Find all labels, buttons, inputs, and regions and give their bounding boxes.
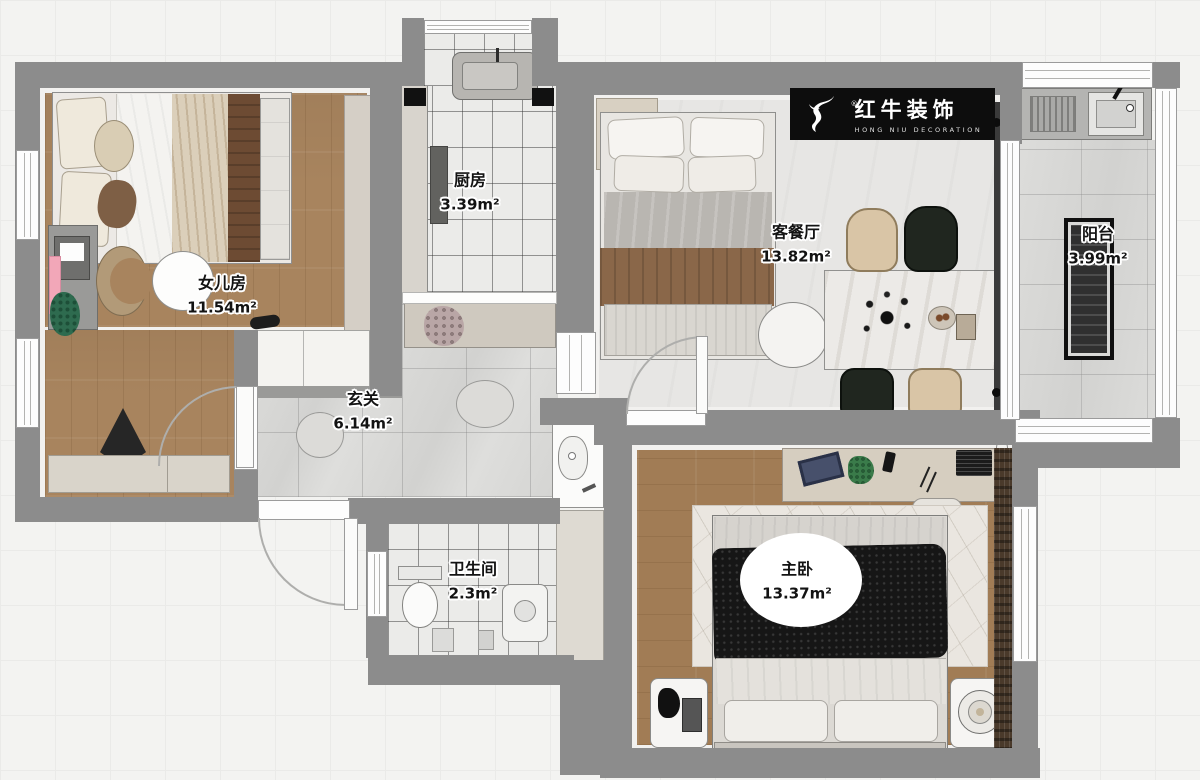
wall — [600, 748, 1040, 778]
daughter-bed-side-rail — [260, 98, 290, 260]
master-pillow — [834, 700, 938, 742]
wall — [1000, 62, 1022, 144]
dining-plate — [928, 306, 956, 330]
window — [16, 150, 39, 240]
room-name: 客餐厅 — [761, 225, 831, 242]
brand-logo-banner: ® 红牛装饰 HONG NIU DECORATION — [790, 88, 995, 140]
room-area: 13.82m² — [761, 250, 831, 266]
master-curtain — [994, 448, 1012, 750]
window-balcony-right — [1155, 88, 1177, 418]
master-desk-laptop — [956, 450, 992, 476]
balcony-vent-grille — [1030, 96, 1076, 132]
window — [16, 338, 39, 428]
wall — [370, 62, 402, 396]
living-bed-pillow — [687, 155, 756, 193]
dining-chair — [904, 206, 958, 272]
master-pillow — [724, 700, 828, 742]
wall — [1012, 443, 1180, 468]
room-label-hall: 玄关 6.14m² — [333, 392, 392, 433]
kitchen-threshold — [402, 292, 557, 304]
hall-rug — [456, 380, 514, 428]
wall — [556, 62, 594, 334]
room-label-bathroom: 卫生间 2.3m² — [449, 562, 498, 603]
dining-tray — [956, 314, 976, 340]
wall — [15, 62, 40, 522]
wall — [234, 468, 258, 522]
room-label-daughter: 女儿房 11.54m² — [187, 276, 257, 317]
room-area: 13.37m² — [762, 587, 832, 603]
window-balcony-top — [1022, 62, 1153, 88]
room-area: 3.99m² — [1068, 252, 1127, 268]
wall — [368, 655, 574, 685]
room-area: 6.14m² — [333, 417, 392, 433]
living-bed-runner — [600, 248, 774, 306]
nightstand-tray — [682, 698, 702, 732]
daughter-round-cushion — [94, 120, 134, 172]
room-label-balcony: 阳台 3.99m² — [1068, 227, 1127, 268]
room-name: 卫生间 — [449, 562, 498, 579]
window-balcony-bottom — [1015, 418, 1153, 443]
wall — [532, 18, 558, 86]
bathroom-fixture — [478, 630, 494, 650]
room-label-master: 主卧 13.37m² — [762, 562, 832, 603]
daughter-bench — [240, 330, 370, 388]
room-label-living: 客餐厅 13.82m² — [761, 225, 831, 266]
daughter-wardrobe — [344, 95, 372, 335]
brand-text: 红牛装饰 HONG NIU DECORATION — [855, 94, 983, 134]
brand-name-cn: 红牛装饰 — [855, 94, 983, 124]
entry-door-swing — [258, 518, 346, 606]
wall — [560, 660, 604, 775]
daughter-plant — [50, 292, 80, 336]
washing-machine-door — [514, 600, 536, 622]
window-bathroom — [367, 551, 387, 617]
kitchen-faucet — [496, 48, 499, 62]
master-bed-duvet-fold — [716, 658, 946, 704]
wall — [234, 330, 258, 388]
kitchen-counter — [402, 86, 428, 292]
corridor-washbasin-drain — [568, 452, 576, 460]
bathroom-side-cabinet — [556, 510, 604, 662]
room-label-kitchen: 厨房 3.39m² — [440, 173, 499, 214]
kitchen-stove-block — [404, 88, 426, 106]
entry-door-opening — [258, 500, 350, 520]
window-master-right — [1013, 506, 1037, 662]
hall-wreath-decor — [424, 306, 464, 346]
nightstand-speaker-dot — [976, 708, 984, 716]
floor-plan: ® 红牛装饰 HONG NIU DECORATION 女儿房 11.54m² 厨… — [0, 0, 1200, 780]
dining-table — [824, 270, 1008, 370]
living-bed-pillow — [613, 155, 684, 193]
brand-name-en: HONG NIU DECORATION — [855, 126, 983, 134]
wall — [604, 420, 632, 750]
wall — [1153, 418, 1180, 443]
window — [424, 20, 532, 34]
toilet-tank — [398, 566, 442, 580]
wall — [15, 497, 258, 522]
bathroom-fixture — [432, 628, 454, 652]
living-bed-pillow — [607, 116, 685, 160]
dining-chair — [846, 208, 898, 272]
living-bed-pillow — [689, 117, 764, 160]
hall-living-threshold — [556, 332, 596, 394]
toilet-bowl — [402, 582, 438, 628]
room-name: 阳台 — [1068, 227, 1127, 244]
dining-centerpiece-plant — [858, 288, 916, 342]
wall — [15, 62, 375, 88]
kitchen-stove-block — [532, 88, 554, 106]
room-name: 玄关 — [333, 392, 392, 409]
room-name: 主卧 — [762, 562, 832, 579]
living-round-table — [758, 302, 828, 368]
bull-icon: ® — [803, 94, 847, 134]
wall — [1153, 62, 1180, 88]
living-bed-duvet — [604, 192, 772, 250]
nightstand-plant — [658, 688, 680, 718]
wall — [402, 18, 424, 86]
room-name: 厨房 — [440, 173, 499, 190]
room-name: 女儿房 — [187, 276, 257, 293]
daughter-chair-seat — [110, 258, 152, 304]
living-door-leaf — [696, 336, 708, 414]
balcony-faucet-handle — [1126, 104, 1134, 112]
entry-door-leaf — [344, 518, 358, 610]
wall — [348, 498, 560, 524]
kitchen-sink-basin — [462, 62, 518, 90]
master-desk-plant — [848, 456, 874, 484]
daughter-bed-quilt — [172, 94, 230, 262]
daughter-door-leaf — [236, 386, 254, 468]
room-area: 2.3m² — [449, 587, 498, 603]
registered-mark: ® — [851, 100, 858, 108]
room-area: 11.54m² — [187, 301, 257, 317]
balcony-living-glass — [1000, 140, 1020, 420]
daughter-bed-runner — [228, 94, 260, 262]
room-area: 3.39m² — [440, 198, 499, 214]
